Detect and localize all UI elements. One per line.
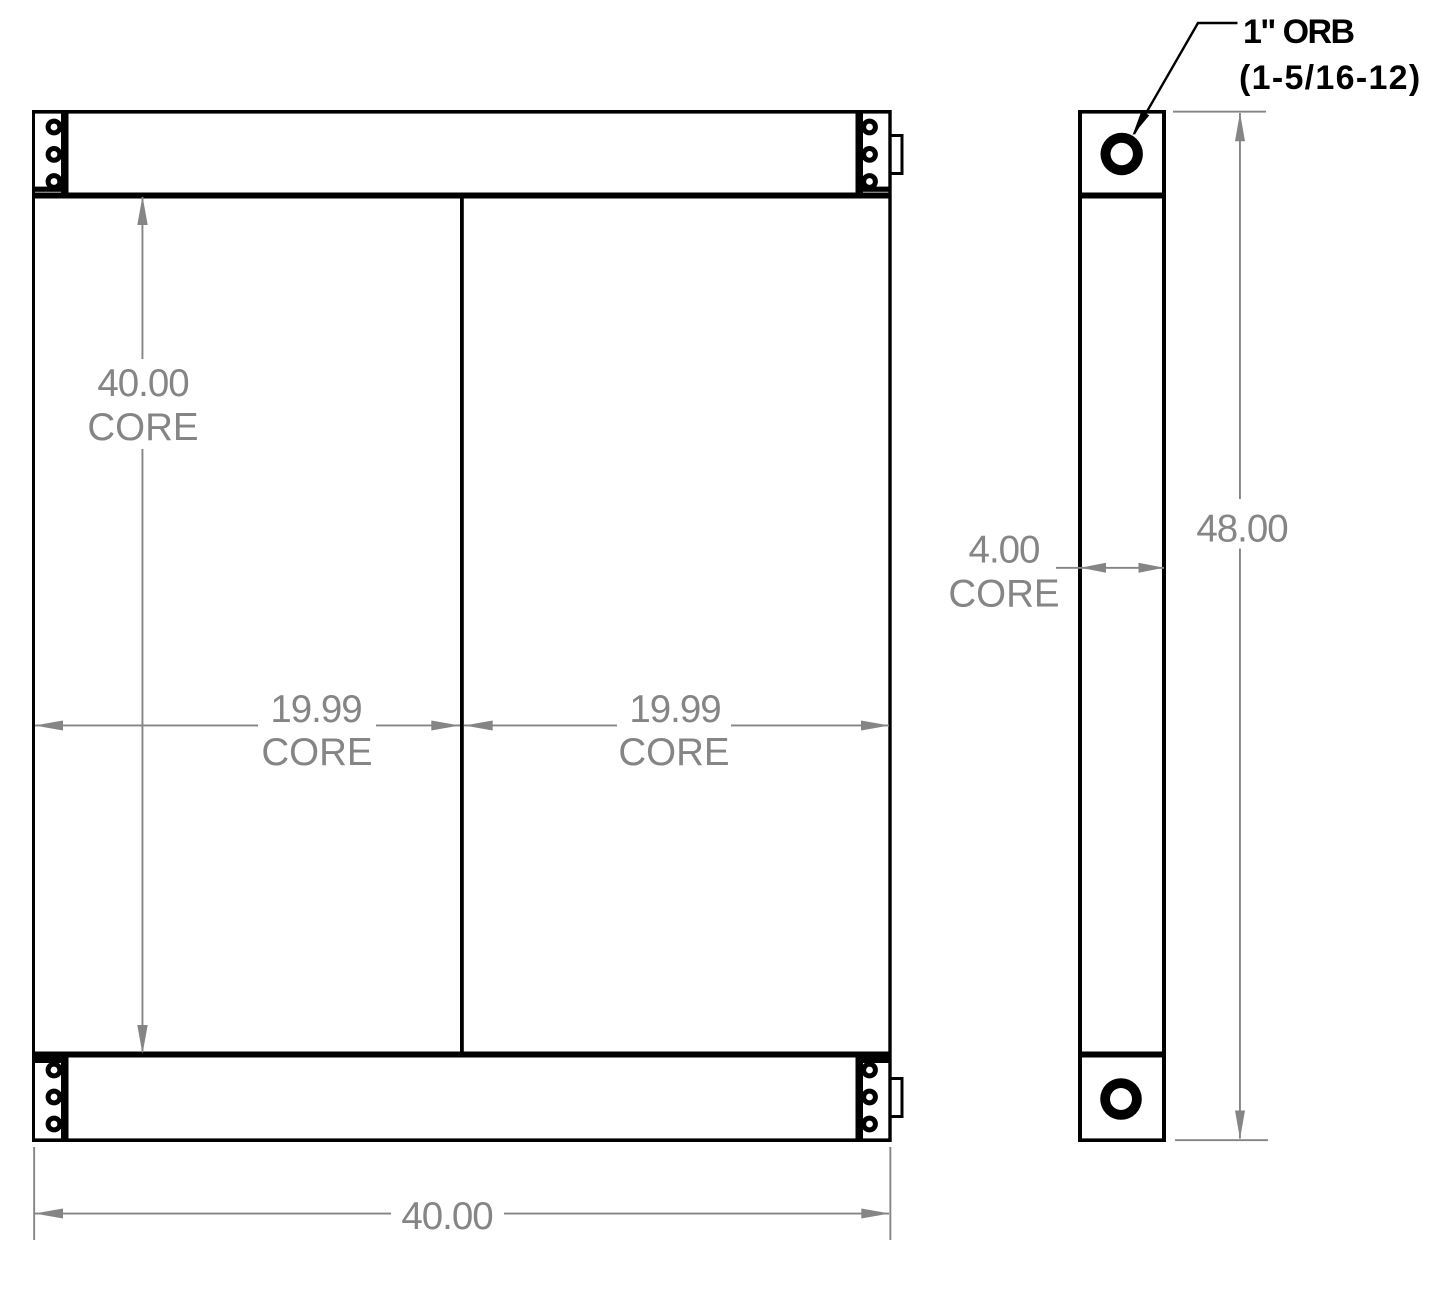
svg-text:40.00: 40.00 xyxy=(401,1195,492,1238)
svg-text:(1-5/16-12): (1-5/16-12) xyxy=(1239,59,1422,97)
svg-text:48.00: 48.00 xyxy=(1196,508,1287,551)
svg-text:CORE: CORE xyxy=(618,731,729,774)
svg-text:19.99: 19.99 xyxy=(629,688,720,731)
svg-text:4.00: 4.00 xyxy=(969,529,1040,572)
svg-text:19.99: 19.99 xyxy=(270,688,361,731)
svg-text:CORE: CORE xyxy=(261,731,372,774)
svg-text:40.00: 40.00 xyxy=(97,362,188,405)
svg-text:CORE: CORE xyxy=(948,573,1059,616)
svg-text:CORE: CORE xyxy=(87,406,198,449)
svg-text:1" ORB: 1" ORB xyxy=(1243,13,1354,51)
